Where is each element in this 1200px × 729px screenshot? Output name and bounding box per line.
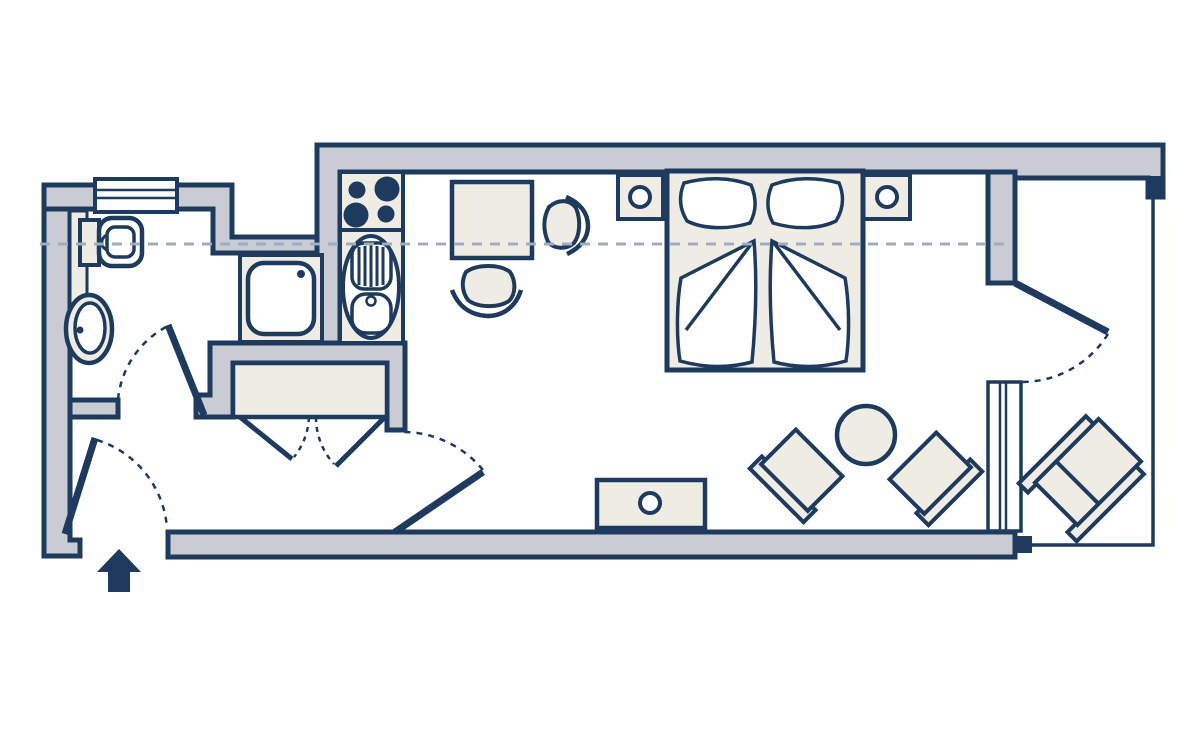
- corner-post: [1147, 176, 1164, 197]
- armchair-left-seat: [761, 430, 842, 511]
- nightstand-left-lamp: [630, 187, 650, 207]
- wardrobe: [233, 363, 387, 417]
- balcony-door-swing: [1020, 334, 1108, 382]
- balcony-door-leaf: [1015, 283, 1108, 332]
- stove-burner-large-1: [375, 177, 400, 202]
- armchair-left: [750, 426, 846, 522]
- pillow-right: [768, 179, 842, 228]
- wall-end-block: [1013, 536, 1032, 553]
- sideboard: [597, 480, 705, 528]
- window-frame: [95, 179, 177, 212]
- entry-door-swing: [97, 440, 167, 528]
- wardrobe-door-left: [240, 417, 292, 459]
- nightstand-right: [863, 175, 910, 219]
- kitchenette: [340, 172, 403, 343]
- floor-plan: [0, 0, 1200, 729]
- armchair-right: [886, 429, 982, 525]
- toilet-bowl-inner: [107, 227, 134, 257]
- living-door-swing: [402, 432, 483, 470]
- coffee-table: [837, 406, 895, 464]
- chair-right-seat: [544, 201, 579, 248]
- entrance-arrow: [97, 549, 141, 592]
- armchair-right-seat: [890, 433, 971, 514]
- wardrobe-door-left-swing: [294, 417, 309, 457]
- shower-drain: [297, 270, 305, 278]
- chair-bottom-seat: [463, 266, 515, 306]
- lounge-chair: [1019, 411, 1149, 541]
- nightstand-left: [618, 175, 663, 219]
- lounger-body: [1035, 419, 1141, 525]
- stove-burner-small-2: [378, 206, 395, 223]
- bathroom-door-leaf: [168, 325, 204, 415]
- stove-burner-small-1: [349, 182, 366, 199]
- wall-bathroom-stub: [70, 400, 118, 417]
- floor-plan-page: [0, 0, 1200, 729]
- bathroom-door-swing: [118, 327, 166, 399]
- sideboard-knob: [640, 493, 660, 513]
- entrance: [65, 438, 167, 592]
- stove-burner-large-2: [344, 203, 369, 228]
- sink-drain: [367, 297, 376, 306]
- living-door-leaf: [395, 472, 483, 532]
- bathroom-window: [95, 179, 177, 212]
- washbasin: [66, 295, 112, 363]
- nightstand-right-lamp: [877, 187, 897, 207]
- washbasin-drain: [77, 327, 84, 334]
- dining-table: [452, 182, 532, 258]
- pillow-left: [681, 179, 755, 228]
- wardrobe-area: [233, 363, 387, 466]
- dining-chair-bottom: [452, 266, 521, 316]
- wall-east-stub: [988, 172, 1015, 283]
- wardrobe-door-right: [336, 417, 385, 466]
- bed-area: [618, 171, 910, 370]
- glazing-panel: [988, 382, 1021, 531]
- dining-area: [452, 182, 588, 316]
- shower: [240, 255, 322, 342]
- living-area: [395, 406, 982, 532]
- double-bed: [667, 171, 863, 370]
- toilet: [80, 218, 142, 266]
- wall-bottom: [168, 532, 1015, 557]
- wardrobe-door-right-swing: [316, 417, 334, 464]
- kitchen-sink: [343, 236, 399, 338]
